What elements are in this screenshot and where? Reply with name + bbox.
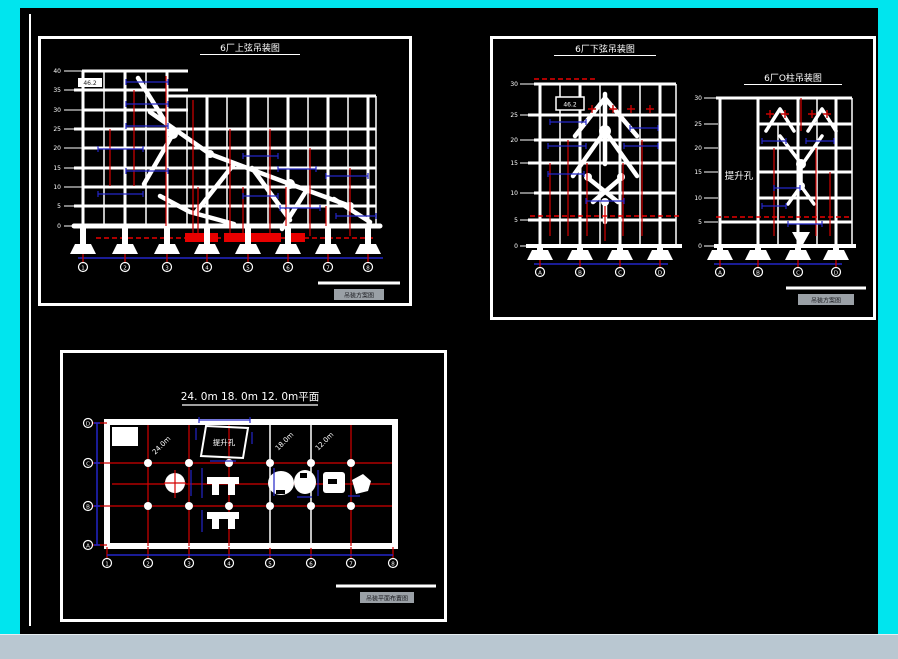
grid-bubble: 5 [268, 562, 272, 568]
drawing1-note-text: 46.2 [83, 80, 97, 87]
elev-label: 15 [694, 169, 702, 176]
plan-left-dimension [94, 423, 100, 545]
drawing3-titleblock: 吊装平面布置图 [336, 586, 436, 603]
elev-label: 20 [694, 145, 702, 152]
grid-bubble: 8 [366, 266, 370, 272]
drawing1-red-dimensions [96, 76, 376, 242]
drawing3-titleblock-text: 吊装平面布置图 [366, 595, 408, 603]
grid-bubble: 7 [326, 266, 330, 272]
drawing2-right-title-text: 6厂O柱吊装图 [764, 72, 822, 84]
elev-label: 35 [53, 87, 61, 94]
elev-label: 5 [514, 217, 518, 224]
grid-bubble: 8 [391, 562, 395, 568]
drawing1-titleblock: 吊装方案图 [318, 283, 400, 300]
elevation-drawing-1: 6厂上弦吊装图 40 35 30 25 20 15 10 5 0 [38, 36, 412, 306]
elevation-drawing-2: 6厂下弦吊装图 30 25 20 15 10 5 0 4 [490, 36, 876, 320]
drawing2-right-red-marks [716, 98, 852, 236]
plan-drawing-3: 24. 0m 18. 0m 12. 0m平面 提升孔 24.0m 18.0m [60, 350, 447, 622]
elev-label: 10 [694, 195, 702, 202]
equipment-blob-3 [352, 474, 371, 494]
drawing2-titleblock-text: 吊装方案图 [811, 297, 841, 305]
drawing1-note: 46.2 [78, 78, 102, 87]
drawing1-title-text: 6厂上弦吊装图 [220, 42, 280, 54]
span-label: 24.0m [151, 435, 173, 457]
elev-label: 30 [694, 95, 702, 102]
elev-label: 10 [510, 190, 518, 197]
elev-label: 5 [698, 219, 702, 226]
elev-label: 20 [510, 137, 518, 144]
grid-bubble: A [86, 544, 90, 550]
drawing2-left-title-text: 6厂下弦吊装图 [575, 43, 635, 55]
window-bottom-edge [0, 634, 898, 659]
grid-bubble: B [756, 271, 760, 277]
grid-bubble: 7 [349, 562, 353, 568]
elev-label: 15 [510, 160, 518, 167]
drawing2-left-footings [527, 246, 673, 268]
equipment-bench-2 [207, 512, 239, 529]
grid-bubble: D [834, 271, 838, 277]
grid-bubble: D [658, 271, 662, 277]
drawing2-left-ticks: 30 25 20 15 10 5 0 [510, 81, 534, 250]
drawing1-border [40, 38, 411, 305]
grid-bubble: 3 [187, 562, 191, 568]
grid-bubble: 6 [309, 562, 313, 568]
plan-col-bubbles: 1 2 3 4 5 6 7 8 [103, 559, 398, 568]
drawing-canvas: 6厂上弦吊装图 40 35 30 25 20 15 10 5 0 [20, 8, 878, 634]
span-label: 12.0m [314, 431, 336, 453]
drawing2-right-bubbles: A B C D [716, 268, 841, 277]
elev-label: 30 [510, 81, 518, 88]
elev-label: 30 [53, 107, 61, 114]
drawing2-left-crane [573, 94, 637, 222]
drawing2-left-note-text: 46.2 [563, 102, 577, 109]
elev-label: 15 [53, 165, 61, 172]
grid-bubble: B [578, 271, 582, 277]
elev-label: 0 [698, 243, 702, 250]
elev-label: 0 [57, 223, 61, 230]
drawing2-right-title: 6厂O柱吊装图 [744, 72, 842, 85]
grid-bubble: B [86, 505, 90, 511]
grid-bubble: 6 [286, 266, 290, 272]
elev-label: 0 [514, 243, 518, 250]
drawing2-right-ticks: 30 25 20 15 10 5 0 [694, 95, 718, 250]
plan-row-bubbles: D C B A [84, 419, 93, 550]
grid-bubble: 4 [227, 562, 231, 568]
elev-label: 20 [53, 145, 61, 152]
grid-bubble: 2 [146, 562, 150, 568]
grid-bubble: 3 [165, 266, 169, 272]
drawing3-title-text: 24. 0m 18. 0m 12. 0m平面 [181, 391, 320, 403]
cad-screenshot: { "colors": { "window_frame": "#00e5ee",… [0, 0, 898, 658]
drawing1-grid-bubbles: 1 2 3 4 5 6 7 8 [79, 263, 373, 272]
plan-corner-block [112, 427, 138, 446]
grid-bubble: 1 [81, 266, 85, 272]
elev-label: 25 [694, 121, 702, 128]
elev-label: 25 [510, 112, 518, 119]
elev-label: 40 [53, 68, 61, 75]
elev-label: 5 [57, 203, 61, 210]
plan-equipment [164, 468, 371, 532]
span-label: 18.0m [274, 431, 296, 453]
grid-bubble: 5 [246, 266, 250, 272]
drawing2-titleblock: 吊装方案图 [786, 288, 866, 305]
grid-bubble: A [718, 271, 722, 277]
drawing2-left-note: 46.2 [556, 97, 584, 110]
drawing2-left-bubbles: A B C D [536, 268, 665, 277]
grid-bubble: C [86, 462, 90, 468]
drawing3-title: 24. 0m 18. 0m 12. 0m平面 [181, 391, 320, 405]
elev-label: 25 [53, 126, 61, 133]
drawing1-footings [70, 226, 383, 262]
lift-hole-label: 提升孔 [213, 437, 236, 447]
drawing2-right-footings [707, 246, 849, 268]
grid-bubble: C [796, 271, 800, 277]
grid-bubble: C [618, 271, 622, 277]
canvas-left-line [29, 14, 31, 626]
equipment-bench-1 [207, 477, 239, 495]
grid-bubble: D [86, 422, 90, 428]
drawing2-left-title: 6厂下弦吊装图 [554, 43, 656, 56]
drawing1-title: 6厂上弦吊装图 [200, 42, 300, 55]
grid-bubble: 4 [205, 266, 209, 272]
grid-bubble: A [538, 271, 542, 277]
drawing1-titleblock-text: 吊装方案图 [344, 292, 374, 300]
grid-bubble: 2 [123, 266, 127, 272]
grid-bubble: 1 [105, 562, 109, 568]
elev-label: 10 [53, 184, 61, 191]
lift-hole-label: 提升孔 [725, 170, 754, 182]
